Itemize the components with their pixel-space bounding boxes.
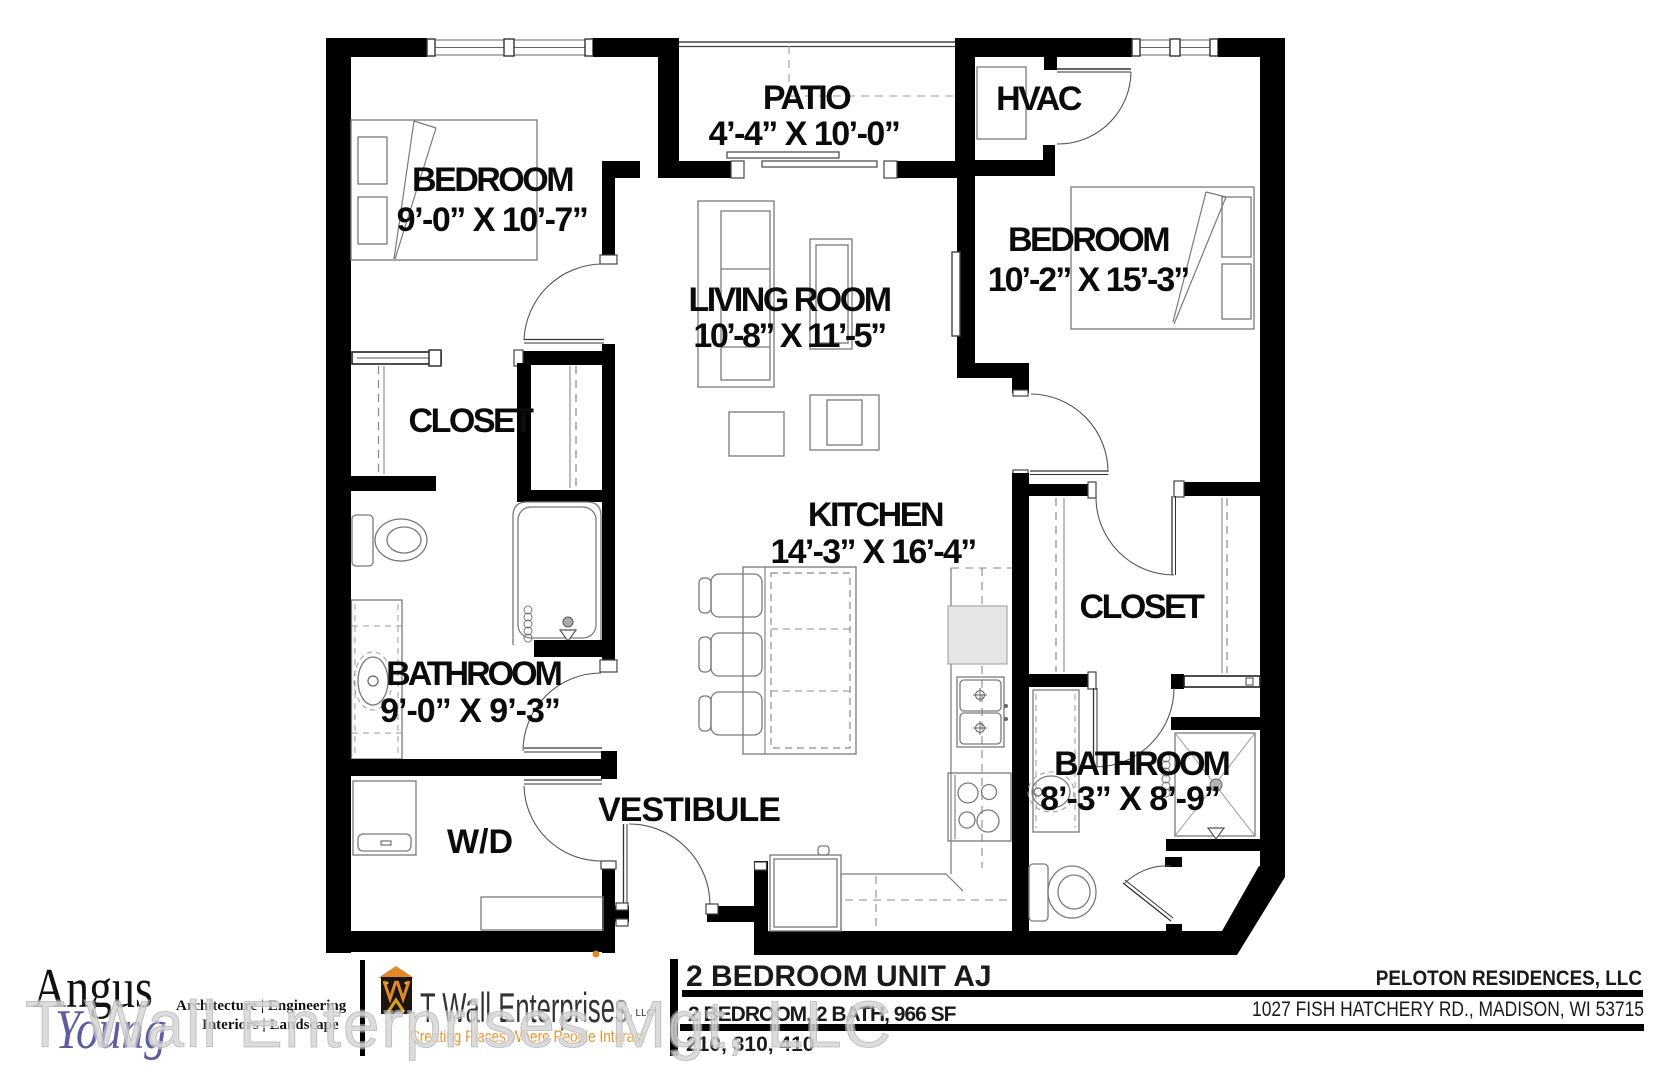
svg-text:KITCHEN: KITCHEN xyxy=(808,496,943,534)
svg-text:BEDROOM: BEDROOM xyxy=(412,161,573,199)
svg-text:T Wall Enterprises Mgt, LLC: T Wall Enterprises Mgt, LLC xyxy=(25,987,891,1061)
svg-text:14’-3” X 16’-4”: 14’-3” X 16’-4” xyxy=(770,533,975,571)
svg-text:BEDROOM: BEDROOM xyxy=(1008,221,1169,259)
svg-text:10’-8” X 11’-5”: 10’-8” X 11’-5” xyxy=(693,317,885,355)
svg-text:CLOSET: CLOSET xyxy=(409,402,535,440)
svg-text:CLOSET: CLOSET xyxy=(1080,588,1206,626)
svg-text:PATIO: PATIO xyxy=(763,79,851,117)
svg-text:W/D: W/D xyxy=(447,823,513,861)
svg-text:9’-0” X 9’-3”: 9’-0” X 9’-3” xyxy=(380,692,560,730)
svg-text:1027 FISH HATCHERY RD., MADISO: 1027 FISH HATCHERY RD., MADISON, WI 5371… xyxy=(1252,999,1644,1022)
svg-text:8’-3” X 8’-9”: 8’-3” X 8’-9” xyxy=(1040,780,1220,818)
svg-text:9’-0” X 10’-7”: 9’-0” X 10’-7” xyxy=(397,201,588,239)
svg-text:4’-4” X 10’-0”: 4’-4” X 10’-0” xyxy=(709,115,900,153)
svg-text:VESTIBULE: VESTIBULE xyxy=(598,791,780,829)
svg-text:BATHROOM: BATHROOM xyxy=(1054,745,1229,783)
svg-text:PELOTON RESIDENCES, LLC: PELOTON RESIDENCES, LLC xyxy=(1376,967,1642,990)
svg-text:BATHROOM: BATHROOM xyxy=(386,655,561,693)
svg-text:10’-2” X 15’-3”: 10’-2” X 15’-3” xyxy=(988,261,1189,299)
svg-text:LIVING ROOM: LIVING ROOM xyxy=(688,281,890,319)
svg-text:HVAC: HVAC xyxy=(996,80,1082,118)
